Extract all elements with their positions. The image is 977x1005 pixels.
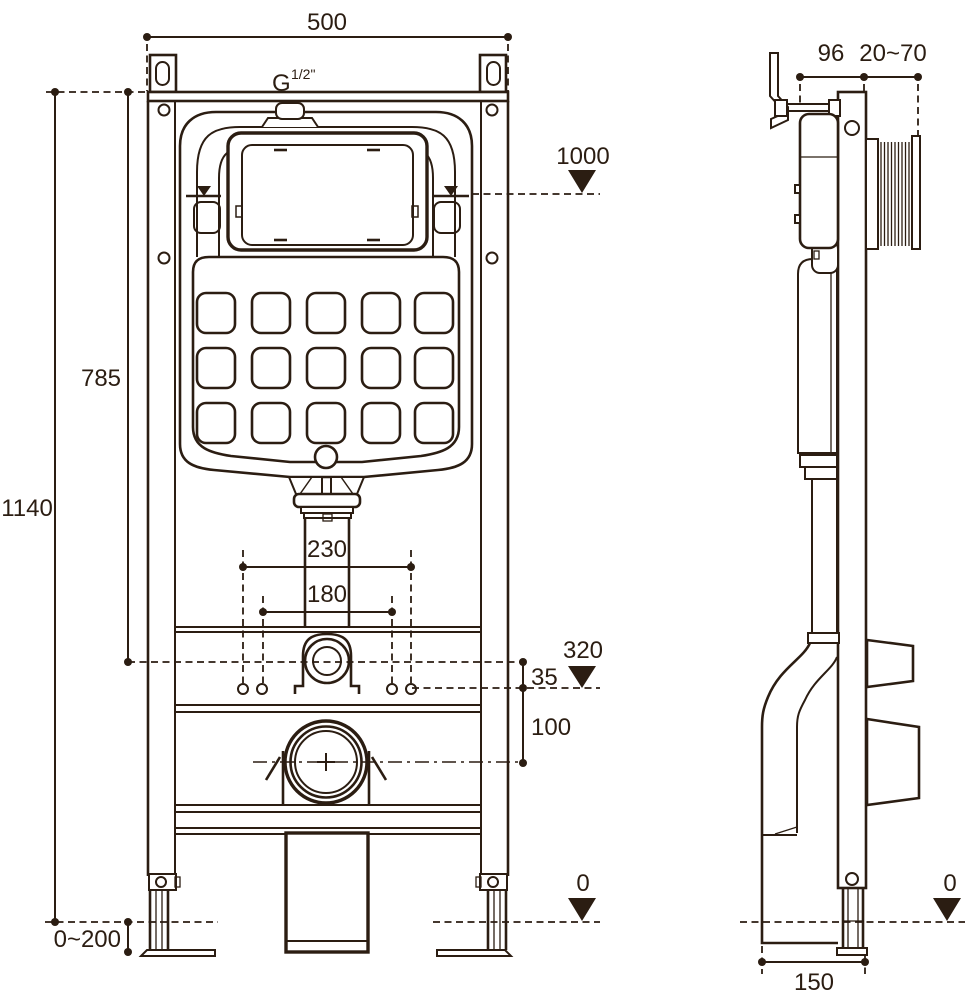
frame-rail-side bbox=[838, 92, 866, 888]
access-window bbox=[228, 133, 427, 250]
dim-frame-width-500: 500 bbox=[143, 9, 512, 91]
installation-drawing-page: 1140 785 500 G 1/2" bbox=[0, 0, 977, 1000]
fixing-hole bbox=[387, 684, 397, 694]
outlet-bend-cover bbox=[286, 833, 368, 952]
dim-frame-height-1140: 1140 bbox=[1, 88, 146, 926]
side-view: 96 20~70 bbox=[740, 40, 965, 996]
fixing-hole bbox=[406, 684, 416, 694]
drain-socket bbox=[253, 721, 519, 805]
flush-plate-level-1000: 1000 bbox=[472, 143, 610, 194]
dim-label-785: 785 bbox=[81, 365, 121, 392]
rail-hole bbox=[487, 105, 498, 116]
drain-outlet-stub bbox=[867, 719, 919, 805]
flush-valve-hole bbox=[315, 446, 337, 468]
front-view: 1140 785 500 G 1/2" bbox=[1, 9, 610, 956]
dim-label-0-200: 0~200 bbox=[54, 926, 121, 953]
wall-bracket-left bbox=[150, 55, 176, 92]
dim-label-1140: 1140 bbox=[1, 495, 53, 522]
thread-size: 1/2" bbox=[291, 66, 315, 82]
rail-hole bbox=[487, 253, 498, 264]
dim-label-150: 150 bbox=[794, 969, 834, 996]
frame-top-bar bbox=[148, 92, 508, 101]
dim-label-0-side: 0 bbox=[943, 870, 956, 897]
concealed-cistern bbox=[180, 103, 472, 477]
wall-bracket-right bbox=[480, 55, 506, 92]
wc-frame-technical-drawing: 1140 785 500 G 1/2" bbox=[0, 0, 977, 1000]
corrugated-sleeve bbox=[866, 136, 920, 249]
dim-top-to-inlet-785: 785 bbox=[81, 88, 132, 666]
level-triangle-0-front bbox=[568, 898, 596, 921]
cistern-side-profile bbox=[795, 114, 839, 643]
dim-label-180: 180 bbox=[307, 581, 347, 608]
adjustable-foot-right bbox=[437, 874, 511, 956]
dim-label-35: 35 bbox=[531, 664, 558, 691]
level-triangle-0-side bbox=[933, 898, 961, 921]
fixing-hole bbox=[257, 684, 267, 694]
adjustable-foot-side bbox=[837, 888, 867, 955]
rail-hole bbox=[159, 105, 170, 116]
dim-label-1000: 1000 bbox=[556, 143, 609, 170]
adjustable-foot-left bbox=[141, 874, 215, 956]
dim-label-20-70: 20~70 bbox=[859, 40, 926, 67]
inlet-connector-side bbox=[867, 640, 913, 687]
water-inlet-bracket bbox=[295, 634, 359, 694]
dim-label-0-front: 0 bbox=[576, 870, 589, 897]
dim-label-230: 230 bbox=[307, 536, 347, 563]
rail-hole bbox=[159, 253, 170, 264]
fixing-hole bbox=[238, 684, 248, 694]
dim-label-100: 100 bbox=[531, 714, 571, 741]
dim-foot-adjust: 0~200 bbox=[54, 918, 132, 956]
dim-label-500: 500 bbox=[307, 9, 347, 36]
dim-label-96: 96 bbox=[818, 40, 845, 67]
drain-elbow-side bbox=[762, 643, 838, 943]
level-triangle-1000 bbox=[568, 170, 596, 193]
level-triangle-320 bbox=[568, 666, 596, 688]
dim-label-320: 320 bbox=[563, 637, 603, 664]
